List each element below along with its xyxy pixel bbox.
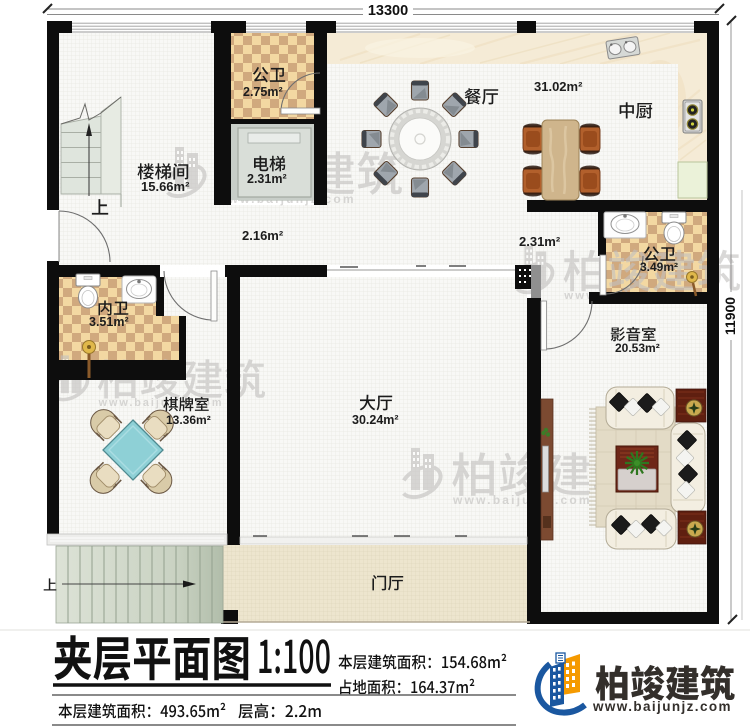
svg-text:2.31m²: 2.31m² — [247, 172, 287, 186]
svg-text:30.24m²: 30.24m² — [352, 413, 399, 427]
svg-text:13.36m²: 13.36m² — [166, 413, 211, 427]
svg-text:11900: 11900 — [722, 297, 738, 335]
svg-text:2.31m²: 2.31m² — [519, 234, 561, 249]
svg-text:31.02m²: 31.02m² — [534, 79, 583, 94]
svg-text:15.66m²: 15.66m² — [141, 179, 190, 194]
svg-text:2.75m²: 2.75m² — [243, 85, 283, 99]
svg-text:www.baijunjz.com: www.baijunjz.com — [592, 699, 732, 714]
svg-text:20.53m²: 20.53m² — [615, 341, 660, 355]
svg-text:3.51m²: 3.51m² — [89, 315, 129, 329]
svg-text:3.49m²: 3.49m² — [640, 260, 678, 274]
svg-text:13300: 13300 — [368, 3, 408, 19]
svg-text:2.16m²: 2.16m² — [242, 228, 284, 243]
